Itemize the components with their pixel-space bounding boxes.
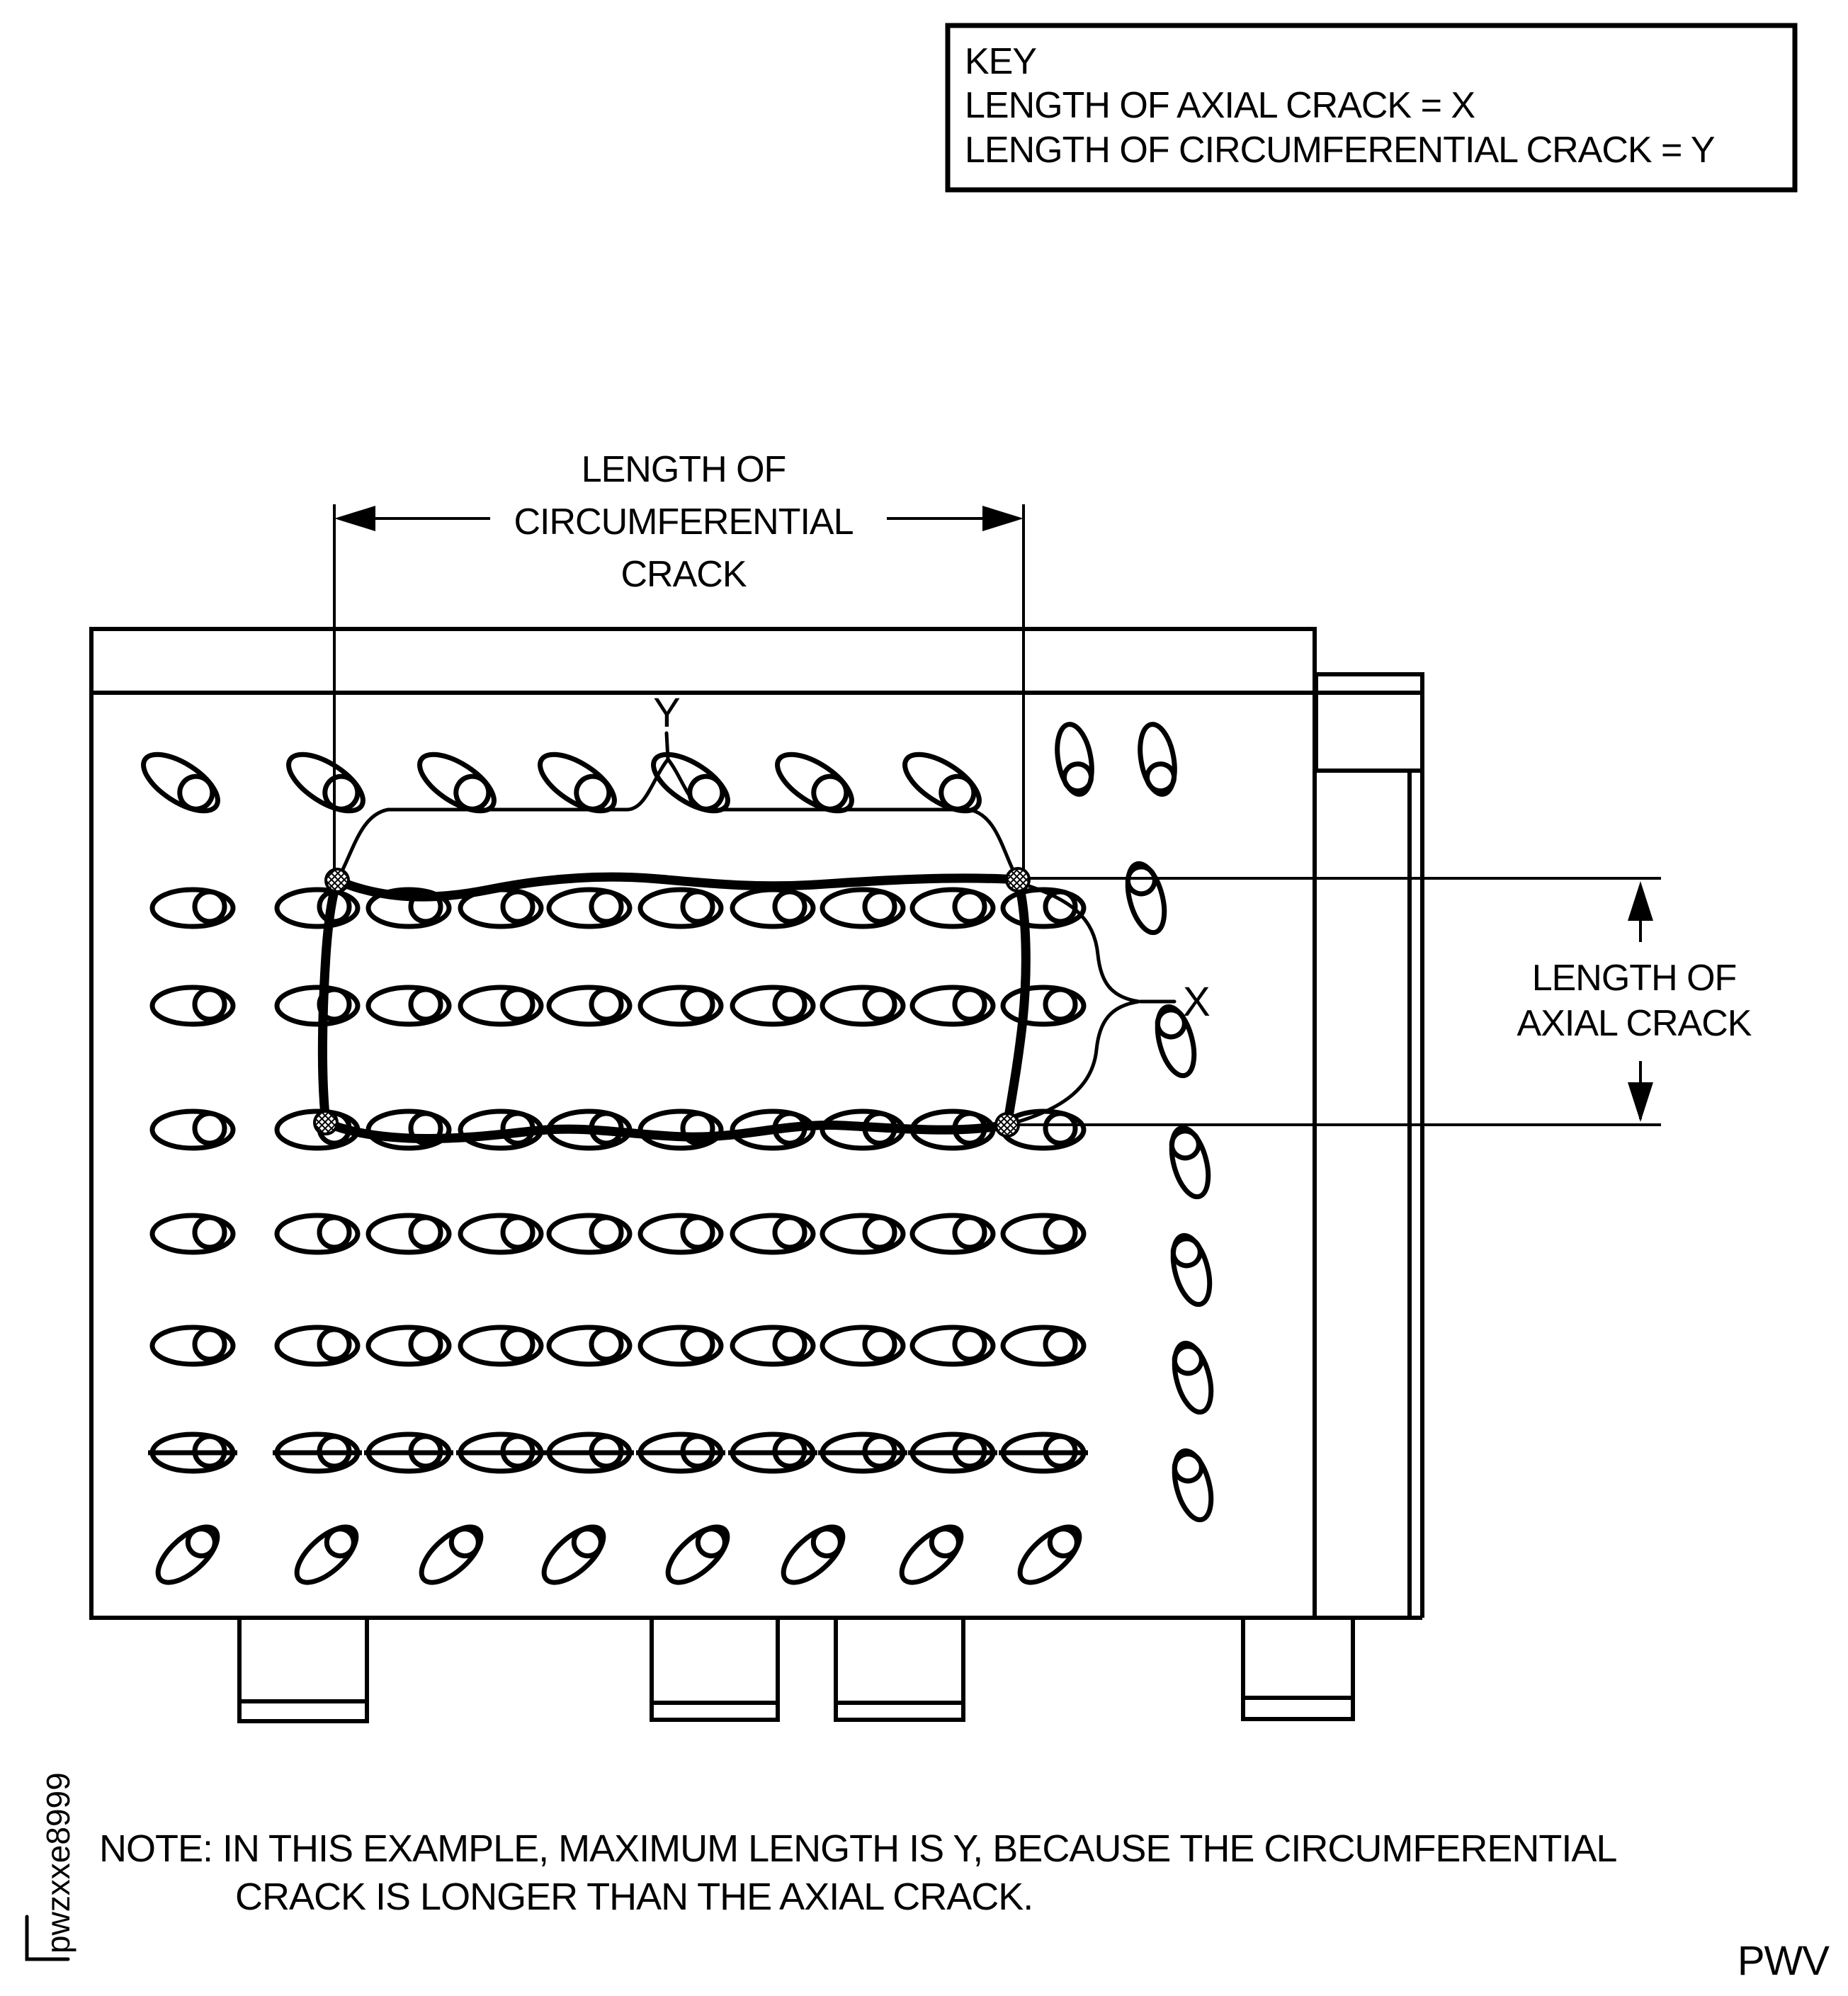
part-drawing — [91, 504, 1661, 1721]
cooling-hole — [732, 890, 813, 926]
cooling-hole — [774, 1517, 851, 1592]
cooling-hole — [549, 890, 630, 926]
cooling-hole — [1135, 722, 1180, 797]
cooling-hole — [152, 1111, 233, 1148]
key-axial-definition: LENGTH OF AXIAL CRACK = X — [965, 85, 1475, 126]
crack-corner-marker — [996, 1113, 1019, 1136]
x-crack-callout: X — [1183, 979, 1210, 1025]
cooling-hole — [822, 1327, 903, 1364]
cooling-hole — [640, 1111, 721, 1148]
cooling-hole — [822, 987, 903, 1024]
cooling-hole — [1003, 1327, 1084, 1364]
cooling-hole — [1011, 1517, 1088, 1592]
dimension-arrowhead — [1628, 1082, 1653, 1122]
cooling-hole — [636, 1434, 725, 1471]
cooling-hole — [912, 1215, 993, 1252]
note-line2: CRACK IS LONGER THAN THE AXIAL CRACK. — [235, 1876, 1033, 1918]
cooling-hole — [912, 987, 993, 1024]
cooling-hole — [545, 1434, 634, 1471]
axial-dim-label-line1: LENGTH OF — [1532, 958, 1737, 999]
cooling-hole — [1168, 1339, 1218, 1416]
cooling-hole — [1168, 1447, 1218, 1524]
cooling-hole — [640, 987, 721, 1024]
cooling-hole — [364, 1434, 453, 1471]
cooling-hole — [732, 1327, 813, 1364]
cooling-hole — [659, 1517, 736, 1592]
cooling-hole — [908, 1434, 997, 1471]
crack-measurement-diagram: KEY LENGTH OF AXIAL CRACK = X LENGTH OF … — [0, 0, 1848, 1996]
cooling-hole — [1167, 1232, 1216, 1308]
cooling-hole — [1003, 1215, 1084, 1252]
cooling-hole — [822, 890, 903, 926]
cooling-hole — [368, 1327, 449, 1364]
cooling-hole — [892, 1517, 970, 1592]
cooling-hole — [912, 890, 993, 926]
cooling-hole — [368, 987, 449, 1024]
axial-dim-label-line2: AXIAL CRACK — [1517, 1003, 1752, 1044]
key-circumferential-definition: LENGTH OF CIRCUMFERENTIAL CRACK = Y — [965, 130, 1715, 171]
cooling-hole — [277, 987, 358, 1024]
note-line1: NOTE: IN THIS EXAMPLE, MAXIMUM LENGTH IS… — [99, 1827, 1616, 1870]
cooling-hole — [549, 987, 630, 1024]
crack-corner-marker — [326, 869, 348, 892]
cooling-hole — [277, 890, 358, 926]
mounting-leg — [239, 1618, 367, 1721]
y-leader-line — [667, 733, 668, 759]
cooling-hole — [148, 1434, 237, 1471]
cooling-hole — [277, 1215, 358, 1252]
cooling-hole — [152, 1215, 233, 1252]
crack-corner-marker — [314, 1111, 337, 1134]
cooling-hole — [535, 1517, 612, 1592]
cooling-hole — [732, 987, 813, 1024]
cooling-hole — [152, 1327, 233, 1364]
watermark-text: pwzxxe8999 — [40, 1772, 76, 1954]
cooling-hole — [456, 1434, 545, 1471]
crack-corner-marker — [1007, 868, 1029, 891]
cooling-hole — [732, 1215, 813, 1252]
cooling-hole — [149, 1517, 226, 1592]
cooling-hole — [822, 1215, 903, 1252]
dimension-arrowhead — [982, 506, 1024, 531]
cooling-hole — [152, 890, 233, 926]
circ-dim-label-line2: CIRCUMFERENTIAL — [514, 501, 853, 543]
cooling-hole — [277, 1327, 358, 1364]
cooling-hole — [152, 987, 233, 1024]
y-measurement-brace — [337, 759, 1018, 880]
mounting-leg — [1243, 1618, 1353, 1719]
circ-dim-label-line1: LENGTH OF — [582, 449, 786, 490]
cooling-hole — [460, 1327, 541, 1364]
cooling-hole — [1003, 987, 1084, 1024]
cooling-hole — [1053, 722, 1097, 797]
cooling-hole — [368, 1215, 449, 1252]
cooling-hole — [549, 1327, 630, 1364]
cooling-hole — [640, 890, 721, 926]
cooling-hole — [640, 1215, 721, 1252]
cooling-hole — [412, 1517, 489, 1592]
dimension-arrowhead — [1628, 881, 1653, 921]
labels-layer: KEY LENGTH OF AXIAL CRACK = X LENGTH OF … — [27, 25, 1830, 1984]
cooling-hole — [728, 1434, 817, 1471]
cooling-hole — [288, 1517, 365, 1592]
key-title: KEY — [965, 41, 1036, 82]
cooling-hole — [1121, 860, 1171, 936]
figure-code: PWV — [1738, 1938, 1830, 1984]
cooling-hole — [280, 744, 372, 822]
cooling-hole — [273, 1434, 362, 1471]
cooling-hole — [818, 1434, 907, 1471]
cooling-hole — [1165, 1124, 1215, 1201]
cooling-hole — [912, 1327, 993, 1364]
cooling-hole — [460, 987, 541, 1024]
cooling-hole — [549, 1215, 630, 1252]
circ-dim-label-line3: CRACK — [620, 554, 747, 595]
cooling-hole — [135, 744, 227, 822]
y-crack-callout: Y — [653, 690, 680, 736]
cooling-hole — [460, 1215, 541, 1252]
dimension-arrowhead — [334, 506, 375, 531]
figure-page: KEY LENGTH OF AXIAL CRACK = X LENGTH OF … — [0, 0, 1848, 1996]
cooling-hole — [640, 1327, 721, 1364]
cooling-hole — [999, 1434, 1088, 1471]
